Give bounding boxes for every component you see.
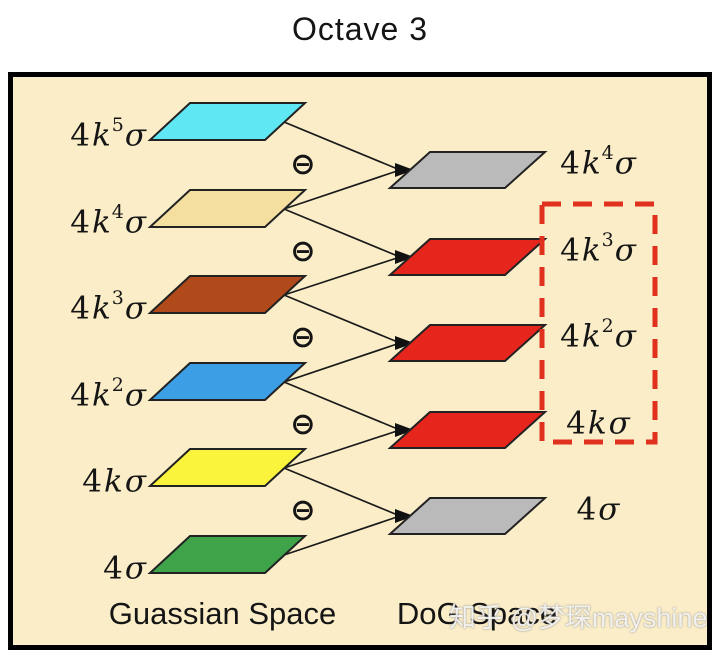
label-sigma: σ xyxy=(615,318,638,354)
label-sigma: σ xyxy=(125,117,148,153)
label-exponent: 4 xyxy=(602,142,614,164)
label-sigma: σ xyxy=(125,550,148,586)
minus-operator-icon: ⊖ xyxy=(286,236,320,268)
label-sigma: σ xyxy=(598,491,621,527)
label-number: 4 xyxy=(560,318,582,354)
label-sigma: σ xyxy=(125,463,148,499)
dog-label-4-sigma: 4σ xyxy=(540,483,658,521)
label-number: 4 xyxy=(103,550,125,586)
label-number: 4 xyxy=(70,117,92,153)
gaussian-label-4-sigma: 4σ xyxy=(18,542,148,580)
gaussian-label-4k3-sigma: 4k3σ xyxy=(18,282,148,320)
label-number: 4 xyxy=(82,463,104,499)
label-k: k xyxy=(104,463,125,499)
label-k: k xyxy=(582,318,603,354)
minus-operator-icon: ⊖ xyxy=(286,322,320,354)
minus-operator-icon: ⊖ xyxy=(286,149,320,181)
label-k: k xyxy=(92,117,113,153)
label-number: 4 xyxy=(70,377,92,413)
label-k: k xyxy=(92,204,113,240)
gaussian-space-caption: Guassian Space xyxy=(85,596,360,632)
dog-label-4k3-sigma: 4k3σ xyxy=(540,224,658,262)
label-sigma: σ xyxy=(125,377,148,413)
minus-operator-icon: ⊖ xyxy=(286,495,320,527)
octave3-dog-pyramid-diagram: Octave 3 xyxy=(0,0,720,657)
gaussian-label-4k2-sigma: 4k2σ xyxy=(18,369,148,407)
dog-label-4k-sigma: 4kσ xyxy=(540,397,658,435)
label-exponent: 2 xyxy=(602,315,614,337)
label-number: 4 xyxy=(577,491,599,527)
label-k: k xyxy=(92,290,113,326)
label-sigma: σ xyxy=(125,290,148,326)
label-exponent: 5 xyxy=(112,114,124,136)
label-number: 4 xyxy=(70,204,92,240)
label-k: k xyxy=(582,145,603,181)
label-sigma: σ xyxy=(125,204,148,240)
label-number: 4 xyxy=(566,405,588,441)
label-sigma: σ xyxy=(615,232,638,268)
label-k: k xyxy=(92,377,113,413)
gaussian-label-4k4-sigma: 4k4σ xyxy=(18,196,148,234)
dog-label-4k4-sigma: 4k4σ xyxy=(540,137,658,175)
label-sigma: σ xyxy=(615,145,638,181)
label-k: k xyxy=(582,232,603,268)
label-number: 4 xyxy=(560,232,582,268)
label-exponent: 2 xyxy=(112,374,124,396)
label-sigma: σ xyxy=(609,405,632,441)
label-exponent: 3 xyxy=(112,287,124,309)
label-k: k xyxy=(588,405,609,441)
watermark: 知乎 @梦琛mayshine xyxy=(449,602,707,634)
minus-operator-icon: ⊖ xyxy=(286,409,320,441)
dog-label-4k2-sigma: 4k2σ xyxy=(540,310,658,348)
gaussian-label-4k5-sigma: 4k5σ xyxy=(18,109,148,147)
label-exponent: 4 xyxy=(112,201,124,223)
label-number: 4 xyxy=(560,145,582,181)
gaussian-label-4k-sigma: 4kσ xyxy=(18,455,148,493)
label-number: 4 xyxy=(70,290,92,326)
label-exponent: 3 xyxy=(602,229,614,251)
